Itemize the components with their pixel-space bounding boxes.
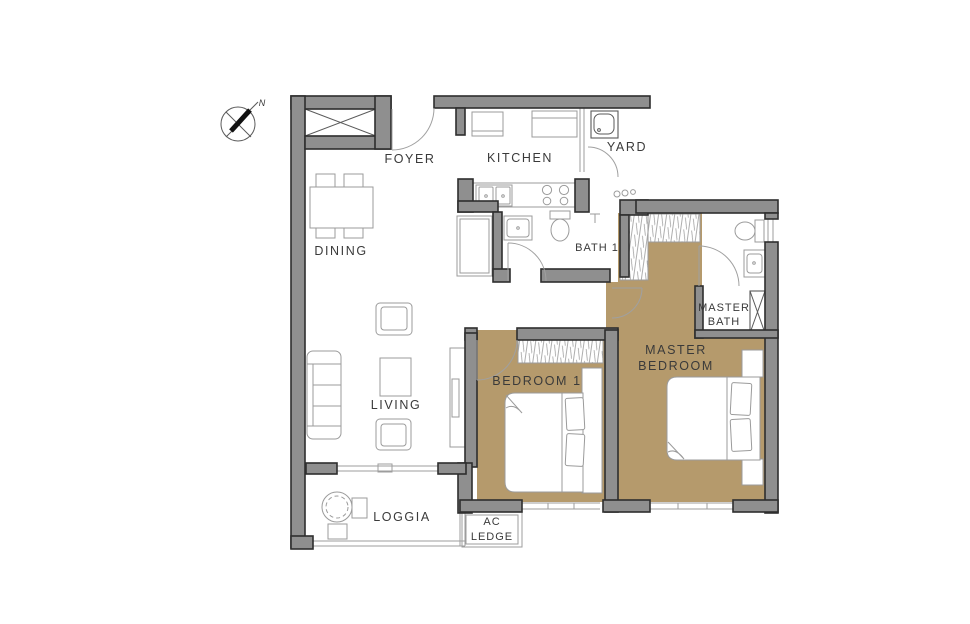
armchair-top-icon <box>376 303 412 335</box>
master-bath-label-2: BATH <box>708 316 741 328</box>
master-toilet-icon <box>735 220 764 242</box>
bath1-sink-icon <box>504 216 532 240</box>
master-bedroom-label-2: BEDROOM <box>638 359 714 373</box>
tv-console-icon <box>450 348 466 447</box>
bedroom1-label: BEDROOM 1 <box>492 374 581 388</box>
master-sink-icon <box>744 250 765 277</box>
yard-label: YARD <box>607 140 647 154</box>
master-window <box>650 503 733 509</box>
floor-plan-page: N FOYER KITCHEN YARD DINING BATH 1 MASTE… <box>0 0 970 624</box>
yard-drain-icon <box>614 190 635 197</box>
kitchen-label: KITCHEN <box>487 151 553 165</box>
foyer-closet-icon <box>305 109 376 136</box>
coffee-table-icon <box>380 358 411 396</box>
armchair-bottom-icon <box>376 419 411 450</box>
loggia-label: LOGGIA <box>373 510 431 524</box>
master-bath-window <box>765 219 778 242</box>
foyer-label: FOYER <box>384 152 435 166</box>
ac-ledge-label-1: AC <box>483 516 500 528</box>
yard-sink-icon <box>591 111 618 138</box>
floor-plan: N FOYER KITCHEN YARD DINING BATH 1 MASTE… <box>0 0 970 624</box>
bedroom1-wardrobe-icon <box>518 338 603 363</box>
sofa-icon <box>307 351 341 439</box>
shower-icon <box>750 291 765 333</box>
bath1-tap-icon <box>590 214 600 223</box>
dining-table-icon <box>310 174 373 238</box>
dining-label: DINING <box>314 244 367 258</box>
bath1-toilet-icon <box>550 211 570 241</box>
ac-ledge-label-2: LEDGE <box>471 531 513 543</box>
master-bath-label-1: MASTER <box>698 302 750 314</box>
master-bath-door-arc <box>699 246 739 286</box>
entrance-door-arc <box>392 108 434 150</box>
fridge-icon <box>457 216 492 276</box>
bedroom1-window <box>522 503 600 509</box>
loggia-slider <box>337 464 438 472</box>
master-bedroom-label-1: MASTER <box>645 343 707 357</box>
compass-north-label: N <box>259 98 266 108</box>
compass-icon: N <box>221 98 266 141</box>
living-label: LIVING <box>371 398 422 412</box>
bath1-label: BATH 1 <box>575 242 619 254</box>
loggia-table-icon <box>322 492 367 539</box>
